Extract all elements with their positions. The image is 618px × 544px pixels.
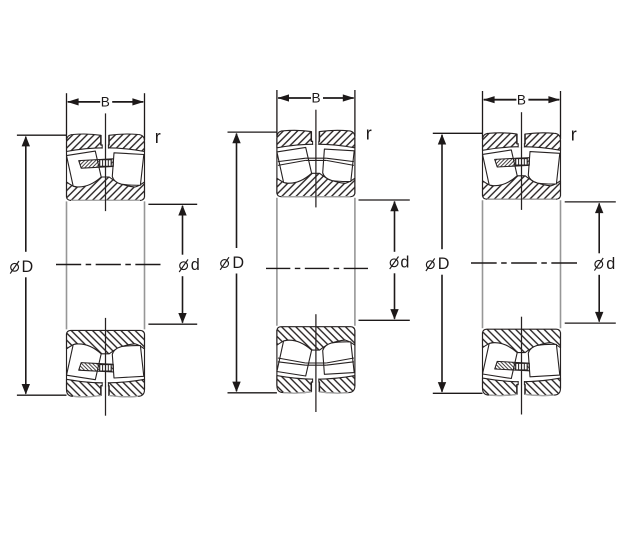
svg-text:r: r — [155, 127, 161, 147]
svg-text:D: D — [22, 258, 34, 276]
svg-text:D: D — [438, 255, 450, 273]
svg-text:d: d — [606, 255, 615, 273]
svg-text:r: r — [571, 125, 577, 145]
svg-text:r: r — [366, 123, 372, 143]
svg-text:B: B — [101, 94, 110, 109]
svg-text:d: d — [400, 253, 409, 271]
svg-text:D: D — [232, 254, 244, 272]
svg-text:B: B — [312, 91, 321, 106]
svg-text:d: d — [191, 256, 200, 274]
svg-text:B: B — [517, 92, 526, 107]
